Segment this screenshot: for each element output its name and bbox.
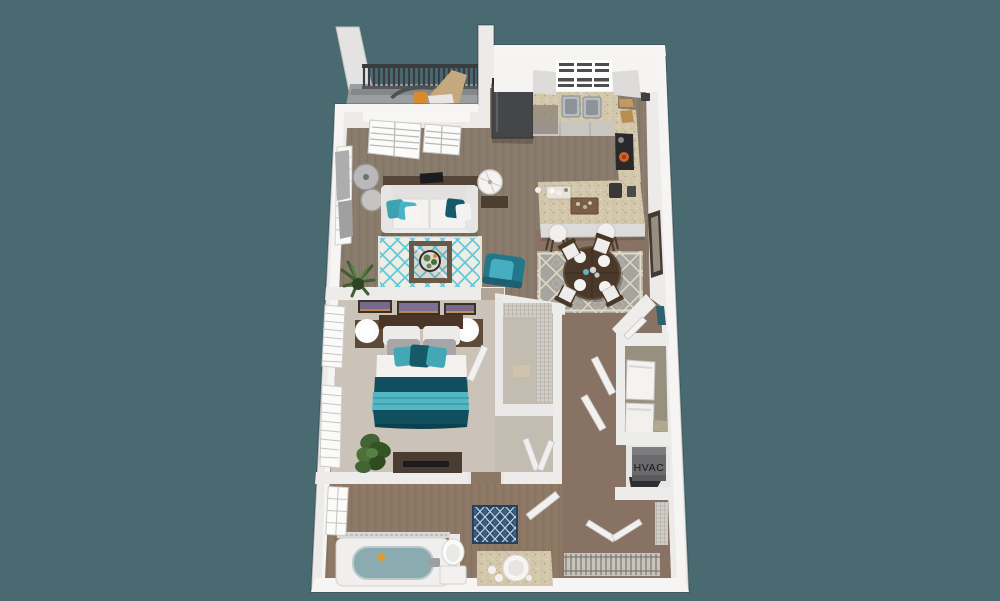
svg-text:HVAC: HVAC [634,462,665,474]
